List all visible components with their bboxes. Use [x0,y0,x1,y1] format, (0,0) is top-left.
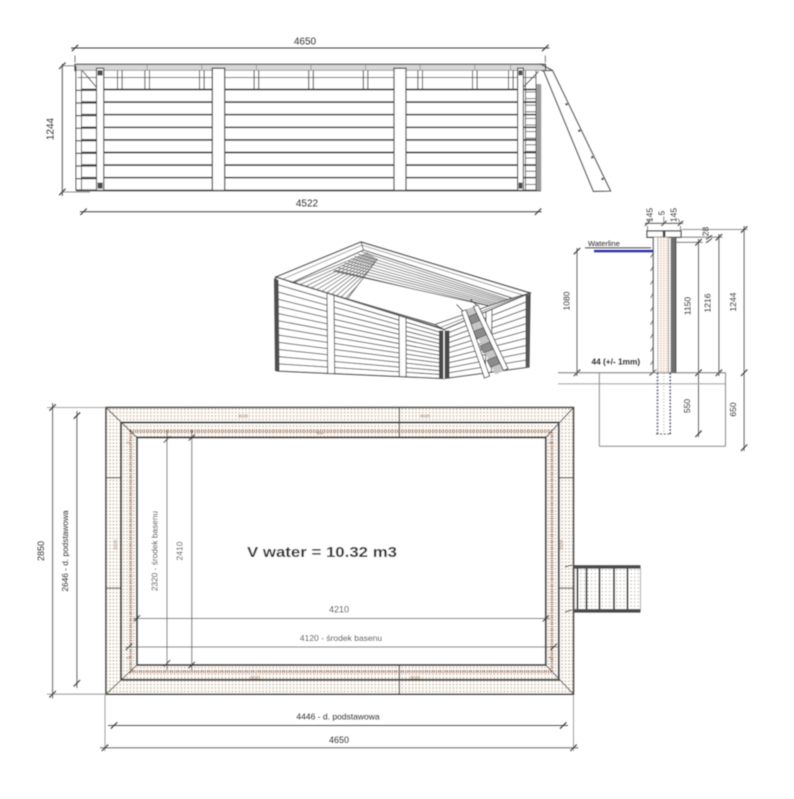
svg-text:4522: 4522 [296,199,319,210]
svg-text:Waterline: Waterline [588,239,620,248]
svg-text:3020: 3020 [410,675,421,680]
svg-text:V water = 10.32 m3: V water = 10.32 m3 [247,544,397,561]
svg-text:4650: 4650 [294,37,317,48]
svg-text:145: 145 [669,208,679,222]
svg-text:44 (+/- 1mm): 44 (+/- 1mm) [592,357,641,367]
svg-text:3020: 3020 [420,414,431,419]
svg-text:550: 550 [682,399,692,413]
svg-text:3020: 3020 [238,414,249,419]
svg-text:28: 28 [701,227,711,237]
svg-text:504: 504 [317,431,325,436]
svg-text:45: 45 [549,655,554,660]
svg-text:4120 - środek basenu: 4120 - środek basenu [300,633,382,643]
svg-text:45: 45 [549,440,554,445]
svg-text:5: 5 [656,210,666,215]
svg-text:1244: 1244 [728,292,738,311]
svg-text:3020: 3020 [250,675,261,680]
svg-text:1150: 1150 [683,297,693,316]
svg-text:4650: 4650 [329,735,349,745]
svg-text:4210: 4210 [329,605,349,615]
svg-text:2020: 2020 [559,539,564,550]
svg-text:2020: 2020 [113,539,118,550]
svg-text:1080: 1080 [562,291,572,310]
svg-text:1216: 1216 [703,293,713,312]
svg-text:650: 650 [728,402,738,416]
svg-text:1244: 1244 [46,117,57,140]
svg-text:2320 - środek basenu: 2320 - środek basenu [150,510,160,591]
svg-text:2410: 2410 [175,541,185,560]
svg-text:4446 - d. podstawowa: 4446 - d. podstawowa [296,712,379,722]
svg-text:45: 45 [126,440,131,445]
svg-text:2646 - d. podstawowa: 2646 - d. podstawowa [60,510,70,592]
svg-text:2850: 2850 [36,541,46,561]
svg-text:45: 45 [126,655,131,660]
